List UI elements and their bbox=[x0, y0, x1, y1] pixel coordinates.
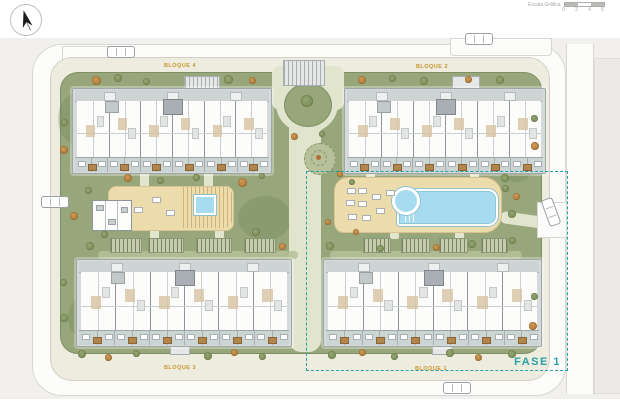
garden-feature-center bbox=[316, 155, 321, 160]
club-fixture bbox=[96, 205, 104, 211]
club-fixture bbox=[121, 207, 128, 213]
east-road bbox=[566, 44, 594, 394]
scale-bar: Escala Gráfica 0 2 4 6 bbox=[528, 2, 605, 13]
fase-1-label: FASE 1 bbox=[514, 356, 561, 368]
plaza-green-island bbox=[284, 83, 332, 127]
club-wall bbox=[105, 201, 106, 230]
scale-bar-graphic: 0 2 4 6 bbox=[564, 2, 605, 13]
scale-tick: 2 bbox=[575, 7, 578, 13]
scale-bar-ticks: 0 2 4 6 bbox=[564, 7, 603, 13]
club-wall bbox=[117, 201, 118, 230]
scale-bar-label: Escala Gráfica bbox=[528, 2, 561, 8]
scale-tick: 0 bbox=[562, 7, 565, 13]
scale-segment bbox=[578, 3, 591, 6]
scale-tick: 6 bbox=[601, 7, 604, 13]
fase-1-boundary: FASE 1 bbox=[306, 171, 568, 371]
adjacent-parcel bbox=[594, 58, 620, 394]
scale-segment bbox=[591, 3, 604, 6]
scale-tick: 4 bbox=[588, 7, 591, 13]
club-building bbox=[92, 200, 132, 231]
north-arrow-glyph bbox=[8, 2, 44, 38]
scale-segment bbox=[565, 3, 578, 6]
north-arrow-icon bbox=[10, 4, 42, 36]
kids-pool bbox=[194, 195, 216, 215]
north-driveway bbox=[450, 38, 552, 56]
club-fixture bbox=[108, 219, 116, 225]
